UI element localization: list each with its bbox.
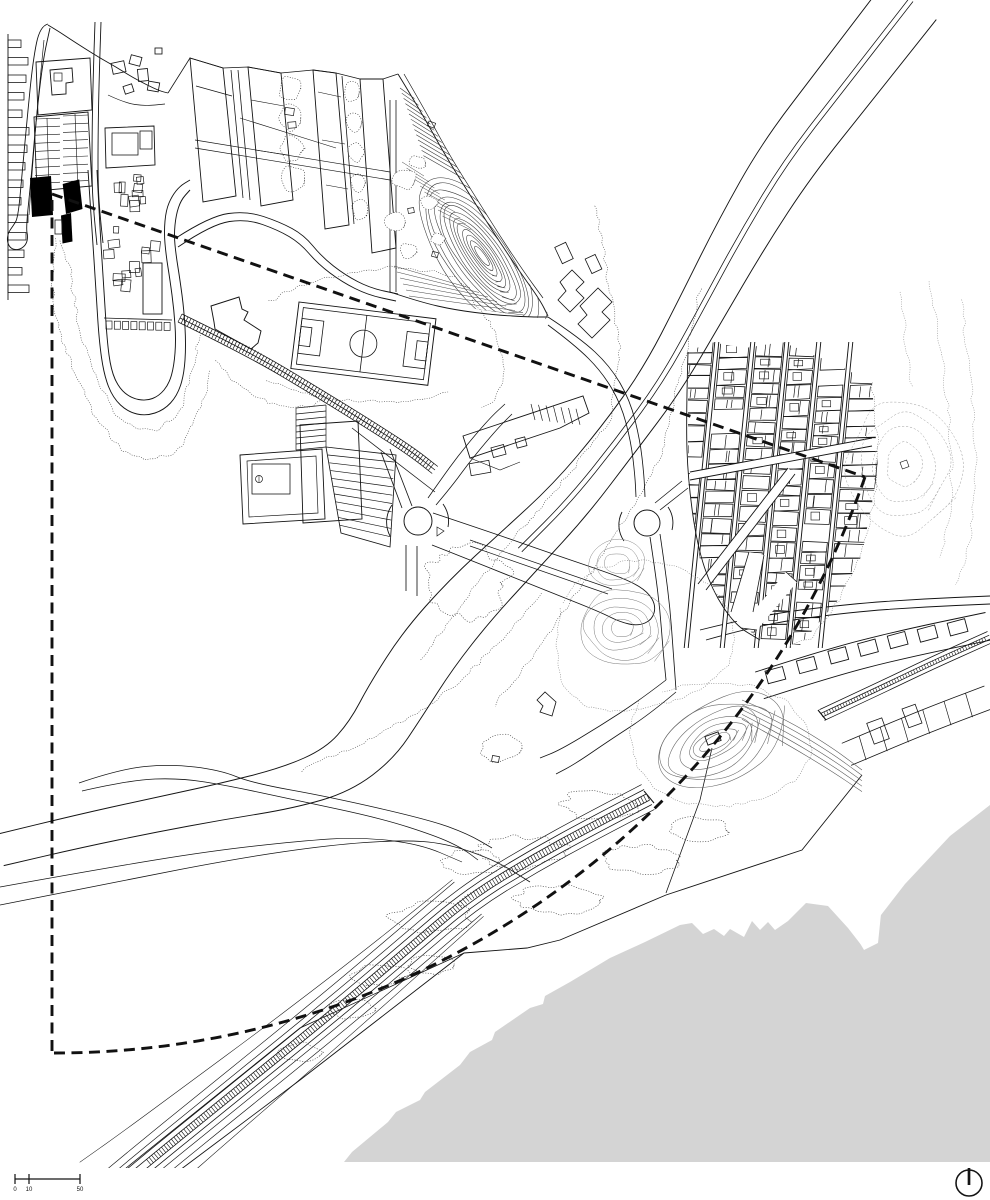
svg-text:10: 10 — [26, 1187, 33, 1193]
svg-text:50: 50 — [77, 1187, 84, 1193]
